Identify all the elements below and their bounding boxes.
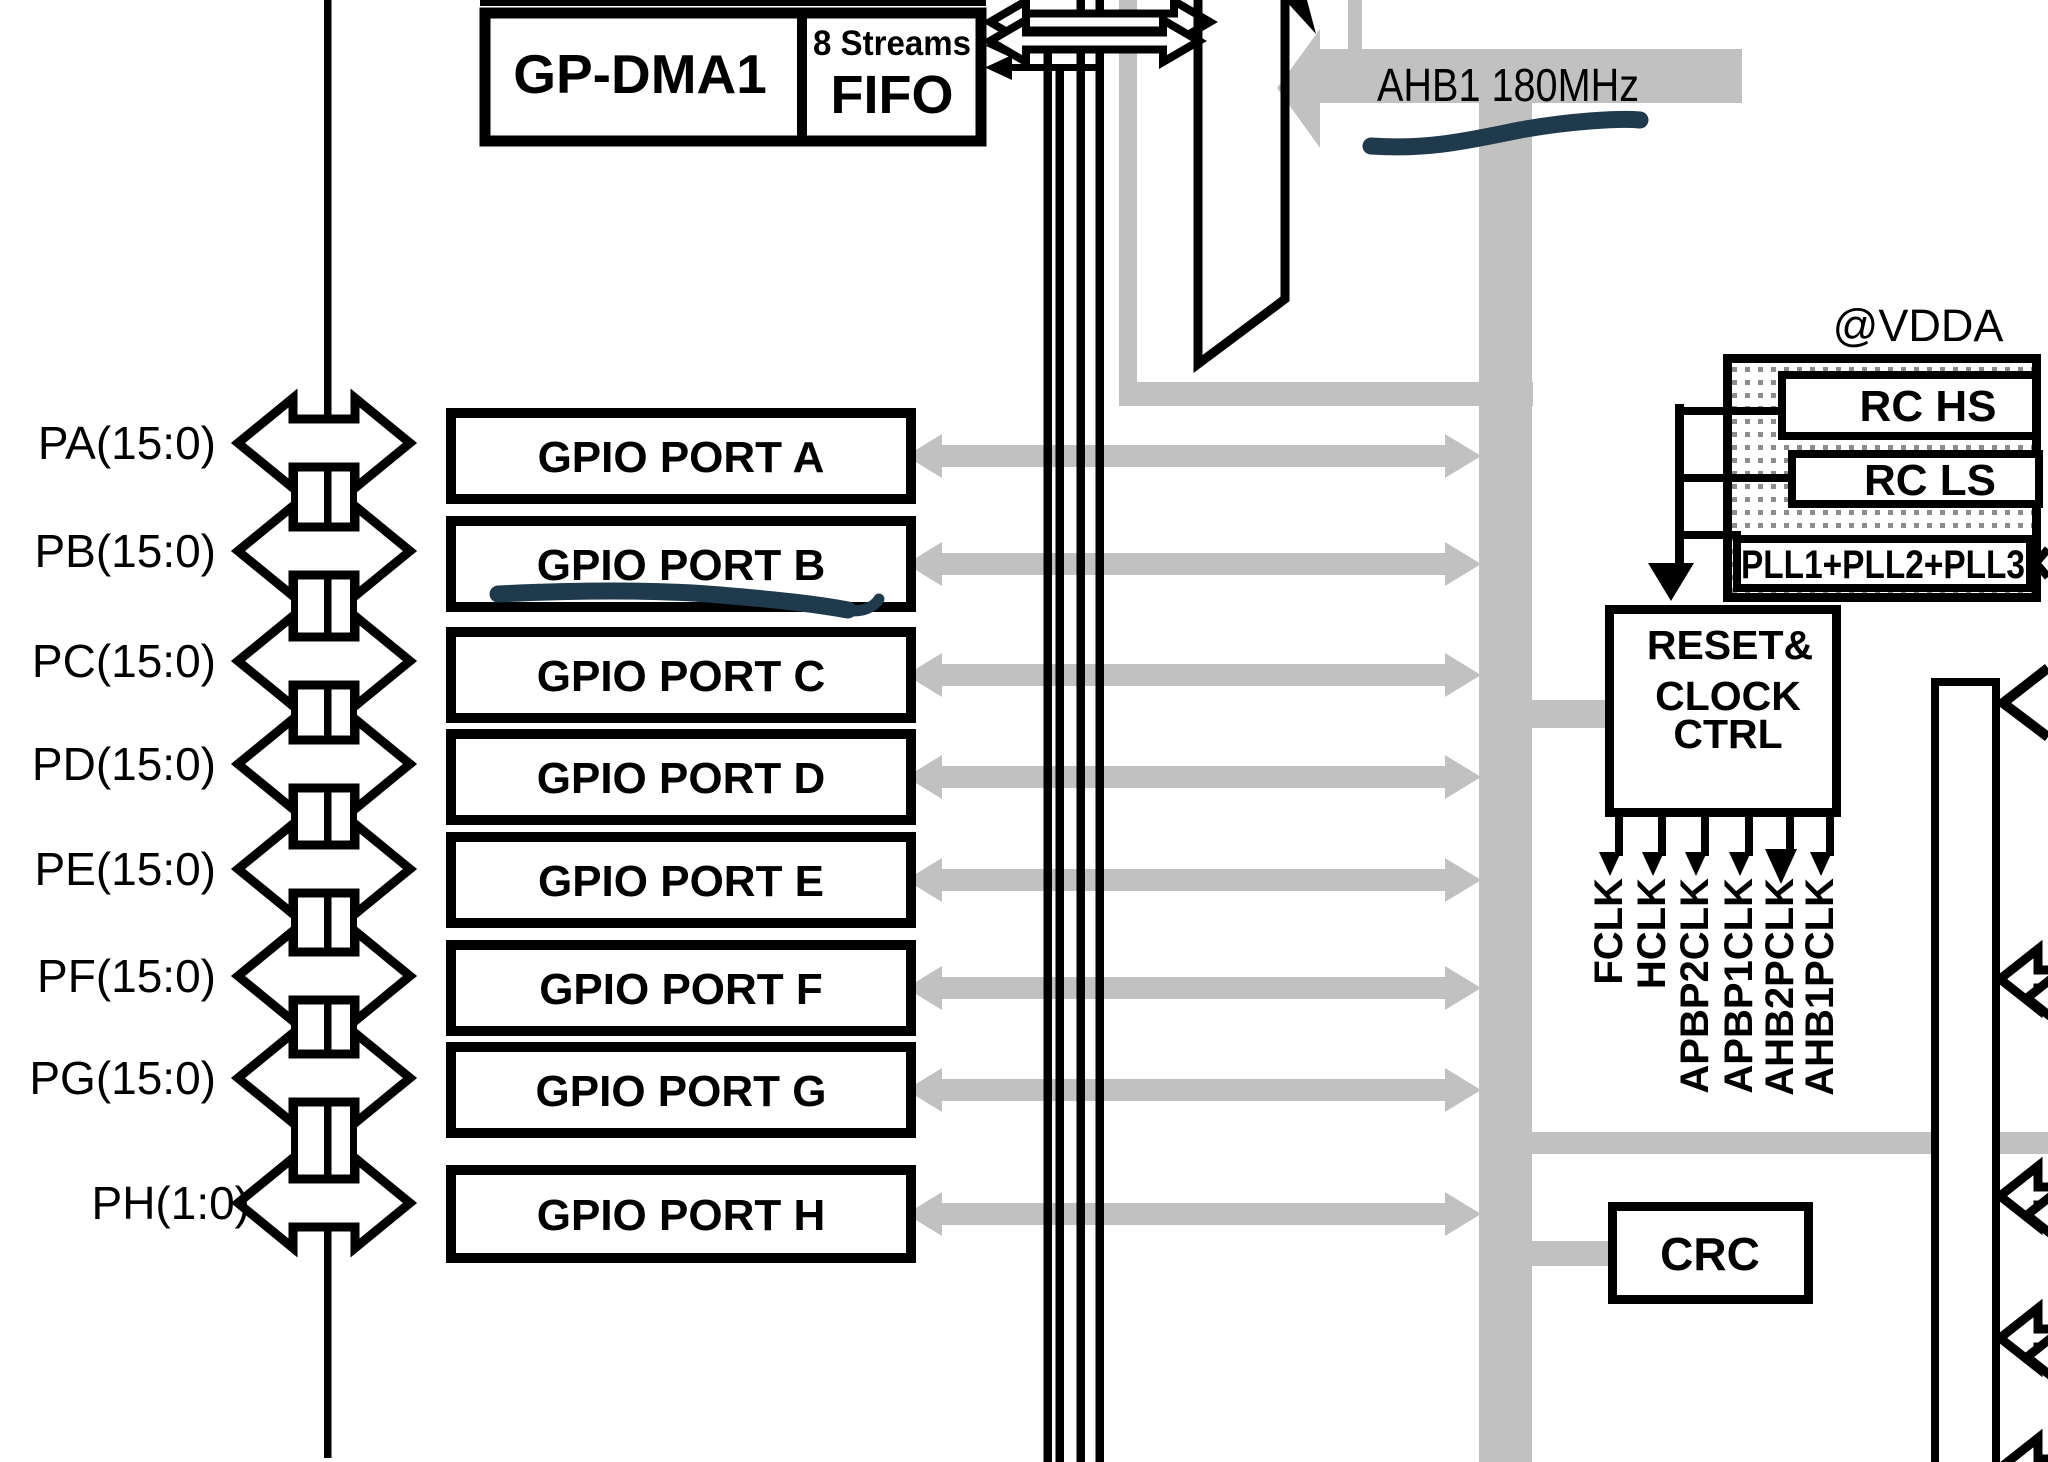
svg-text:PC(15:0): PC(15:0) (32, 635, 216, 687)
svg-text:AHB1PCLK: AHB1PCLK (1798, 878, 1842, 1096)
svg-text:APBP1CLK: APBP1CLK (1717, 878, 1761, 1094)
svg-text:PLL1+PLL2+PLL3: PLL1+PLL2+PLL3 (1741, 543, 2025, 587)
svg-text:RC HS: RC HS (1860, 382, 1997, 431)
svg-text:AHB1 180MHz: AHB1 180MHz (1377, 59, 1639, 111)
svg-text:GPIO PORT C: GPIO PORT C (537, 652, 825, 701)
svg-text:8 Streams: 8 Streams (813, 24, 971, 63)
svg-text:PH(1:0): PH(1:0) (92, 1177, 250, 1229)
svg-text:AHB2PCLK: AHB2PCLK (1758, 878, 1802, 1096)
svg-text:PE(15:0): PE(15:0) (34, 843, 216, 895)
svg-text:GPIO PORT E: GPIO PORT E (538, 857, 824, 906)
svg-text:PD(15:0): PD(15:0) (32, 738, 216, 790)
svg-text:CRC: CRC (1660, 1228, 1760, 1280)
svg-text:PA(15:0): PA(15:0) (38, 417, 216, 469)
svg-text:GP-DMA1: GP-DMA1 (513, 43, 767, 105)
svg-text:FCLK: FCLK (1587, 878, 1631, 985)
svg-text:HCLK: HCLK (1630, 878, 1674, 989)
svg-text:GPIO PORT A: GPIO PORT A (538, 433, 825, 482)
svg-text:GPIO PORT F: GPIO PORT F (539, 965, 823, 1014)
svg-text:PF(15:0): PF(15:0) (37, 950, 216, 1002)
svg-text:FIFO: FIFO (831, 65, 954, 125)
svg-text:PB(15:0): PB(15:0) (34, 525, 216, 577)
svg-text:APBP2CLK: APBP2CLK (1673, 878, 1717, 1094)
svg-text:GPIO PORT G: GPIO PORT G (536, 1067, 827, 1116)
svg-text:RC LS: RC LS (1864, 456, 1996, 505)
svg-text:CTRL: CTRL (1673, 711, 1782, 757)
svg-text:GPIO PORT B: GPIO PORT B (537, 541, 825, 590)
svg-text:GPIO PORT H: GPIO PORT H (537, 1191, 825, 1240)
svg-text:GPIO PORT D: GPIO PORT D (537, 754, 825, 803)
svg-text:PG(15:0): PG(15:0) (29, 1052, 216, 1104)
svg-text:RESET&: RESET& (1647, 622, 1813, 668)
svg-text:@VDDA: @VDDA (1833, 300, 2004, 351)
